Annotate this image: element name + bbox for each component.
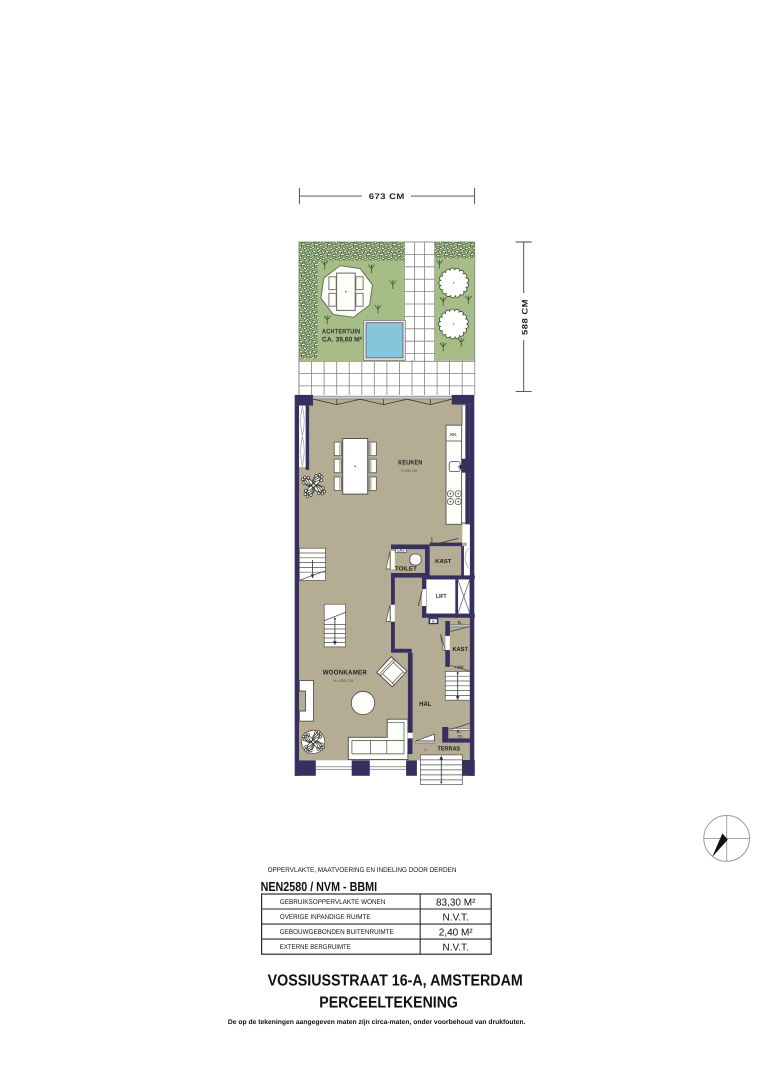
- svg-text:OVERIGE INPANDIGE RUIMTE: OVERIGE INPANDIGE RUIMTE: [280, 914, 371, 921]
- svg-text:GEBOUWGEBONDEN BUITENRUIMTE: GEBOUWGEBONDEN BUITENRUIMTE: [280, 929, 394, 936]
- svg-text:NEN2580 / NVM - BBMI: NEN2580 / NVM - BBMI: [261, 879, 378, 894]
- svg-text:PERCEELTEKENING: PERCEELTEKENING: [319, 995, 458, 1012]
- svg-text:CA. 39,60 M²: CA. 39,60 M²: [322, 336, 363, 343]
- svg-text:ACHTERTUIN: ACHTERTUIN: [322, 329, 360, 336]
- svg-text:K.: K.: [457, 729, 462, 734]
- svg-text:WOONKAMER: WOONKAMER: [323, 670, 367, 677]
- svg-text:TERRAS: TERRAS: [438, 746, 461, 753]
- svg-text:KEUKEN: KEUKEN: [398, 459, 422, 466]
- svg-text:H=339 CM: H=339 CM: [334, 679, 354, 683]
- svg-text:KK.: KK.: [450, 432, 457, 437]
- svg-text:EXTERNE BERGRUIMTE: EXTERNE BERGRUIMTE: [280, 944, 351, 951]
- svg-text:VOSSIUSSTRAAT 16-A, AMSTERDAM: VOSSIUSSTRAAT 16-A, AMSTERDAM: [268, 972, 523, 989]
- svg-text:+150: +150: [454, 665, 464, 670]
- svg-text:83,30 M²: 83,30 M²: [436, 897, 476, 908]
- svg-text:588 CM: 588 CM: [520, 299, 529, 335]
- svg-text:KAST: KAST: [452, 646, 468, 653]
- svg-text:673 CM: 673 CM: [369, 192, 405, 201]
- svg-text:N.V.T.: N.V.T.: [443, 943, 469, 954]
- svg-text:KAST: KAST: [435, 558, 452, 565]
- svg-text:K.: K.: [458, 620, 463, 625]
- svg-text:LIFT: LIFT: [436, 593, 447, 600]
- svg-text:CV: CV: [458, 734, 463, 738]
- svg-text:GEBRUIKSOPPERVLAKTE WONEN: GEBRUIKSOPPERVLAKTE WONEN: [280, 899, 386, 906]
- svg-text:De op de tekeningen aangegeven: De op de tekeningen aangegeven maten zij…: [228, 1019, 526, 1026]
- svg-text:TOILET: TOILET: [395, 565, 417, 572]
- svg-text:N.V.T.: N.V.T.: [443, 912, 469, 923]
- svg-text:OPPERVLAKTE, MAATVOERING EN IN: OPPERVLAKTE, MAATVOERING EN INDELING DOO…: [268, 867, 457, 874]
- svg-text:H=339 CM: H=339 CM: [401, 469, 417, 473]
- svg-text:2,40 M²: 2,40 M²: [439, 928, 474, 939]
- svg-text:HAL: HAL: [419, 701, 431, 708]
